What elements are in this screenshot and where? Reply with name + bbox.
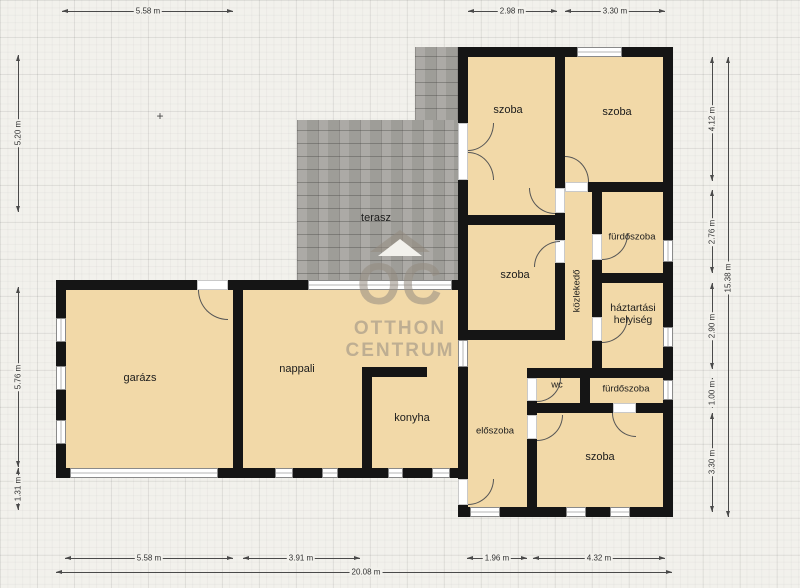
interior-opening <box>458 340 468 367</box>
wall <box>233 280 243 478</box>
dimension-label: 5.58 m <box>134 7 162 16</box>
dimension-label: 3.91 m <box>287 554 315 563</box>
window <box>388 468 403 478</box>
window <box>56 318 66 342</box>
room-label-terasz: terasz <box>361 212 391 224</box>
door-gap <box>565 182 588 192</box>
room-label-eloszoba: előszoba <box>476 426 514 437</box>
window <box>610 507 630 517</box>
door-gap <box>555 188 565 213</box>
wall <box>527 368 673 378</box>
dimension-label: 5.58 m <box>135 554 163 563</box>
garage-door <box>70 468 218 478</box>
wall <box>555 47 565 192</box>
dimension-label: 5.76 m <box>14 363 23 391</box>
wall <box>362 367 372 478</box>
room-label-furdoszoba-top: fürdőszoba <box>608 232 655 243</box>
room-label-kozlekedo: közlekedő <box>572 270 583 313</box>
watermark-logo: OC <box>357 255 443 314</box>
entrance-door-gap <box>458 479 468 505</box>
wall <box>527 403 673 413</box>
window <box>432 468 450 478</box>
window <box>663 327 673 347</box>
room-label-szoba-top-left: szoba <box>493 104 522 116</box>
dimension-label: 1.31 m <box>14 475 23 503</box>
watermark-text-centrum: CENTRUM <box>346 339 455 363</box>
wall <box>592 273 673 283</box>
room-label-konyha: konyha <box>394 412 429 424</box>
floor-plan: OC OTTHON CENTRUM garázs nappali konyha … <box>0 0 800 588</box>
room-label-garazs: garázs <box>123 372 156 384</box>
window <box>322 468 338 478</box>
dimension-label: 2.90 m <box>708 312 717 340</box>
window <box>56 366 66 390</box>
window <box>275 468 293 478</box>
room-label-szoba-middle: szoba <box>500 269 529 281</box>
wall <box>362 367 427 377</box>
survey-cross-marker: + <box>156 109 163 123</box>
terrace-paving-upper <box>415 47 458 122</box>
window <box>470 507 500 517</box>
room-label-furdoszoba-bottom: fürdőszoba <box>602 384 649 395</box>
wall <box>592 182 602 283</box>
window <box>566 507 586 517</box>
wall <box>458 330 565 340</box>
dimension-label: 4.12 m <box>708 105 717 133</box>
door-gap <box>613 403 636 413</box>
room-label-nappali: nappali <box>279 363 314 375</box>
dimension-label: 2.76 m <box>708 218 717 246</box>
window <box>663 240 673 262</box>
dimension-label: 3.30 m <box>708 448 717 476</box>
room-label-wc: wc <box>551 380 563 391</box>
room-label-haztartasi: háztartási helyiség <box>601 302 665 326</box>
dimension-label: 20.08 m <box>350 568 383 577</box>
french-door <box>458 123 468 180</box>
dimension-label: 1.00 m <box>708 379 717 407</box>
window <box>577 47 622 57</box>
door-gap <box>527 378 537 401</box>
window <box>663 380 673 400</box>
dimension-label: 15.38 m <box>724 262 733 295</box>
watermark-text-otthon: OTTHON <box>354 317 446 341</box>
dimension-label: 3.30 m <box>601 7 629 16</box>
door-gap <box>527 415 537 439</box>
door-gap <box>197 280 228 290</box>
wall <box>458 47 468 517</box>
dimension-label: 1.96 m <box>483 554 511 563</box>
door-gap <box>592 234 602 260</box>
dimension-label: 5.20 m <box>14 119 23 147</box>
room-label-szoba-bottom-right: szoba <box>585 451 614 463</box>
dimension-label: 2.98 m <box>498 7 526 16</box>
dimension-label: 4.32 m <box>585 554 613 563</box>
wall <box>458 47 673 57</box>
wall <box>458 215 565 225</box>
room-label-szoba-top-right: szoba <box>602 106 631 118</box>
window <box>56 420 66 444</box>
